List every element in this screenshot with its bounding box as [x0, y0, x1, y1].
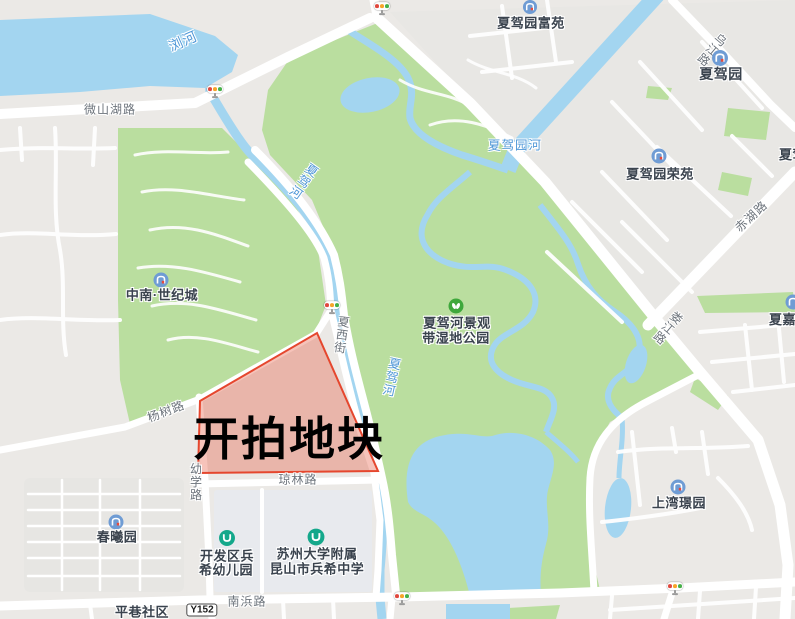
poi-label-kindergarten-line2[interactable]: 希幼儿园 [199, 560, 253, 579]
river-label-xiajiayuanhe: 夏驾园河 [488, 135, 542, 154]
traffic-light-icon [374, 2, 390, 15]
poi-label-school-line2[interactable]: 昆山市兵希中学 [270, 559, 365, 578]
poi-marker-xiajia[interactable] [785, 294, 795, 310]
traffic-light-icon [324, 301, 340, 314]
poi-label-xiajiayuan-rongyuan[interactable]: 夏驾园荣苑 [626, 164, 694, 183]
map-canvas[interactable]: 微山湖路 杨树路 幼学路 琼林路 夏西街 南浜路 乌江路 赤湖路 娄江路 Y15… [0, 0, 795, 619]
traffic-light-icon [667, 582, 683, 595]
pond-south [446, 604, 510, 619]
poi-marker-kindergarten[interactable] [219, 530, 236, 547]
road-badge-y152: Y152 [186, 604, 217, 617]
poi-label-wetland-park-line2[interactable]: 带湿地公园 [422, 328, 490, 347]
poi-label-xiajiayuan-fuyuan[interactable]: 夏驾园富苑 [497, 13, 565, 32]
poi-label-xiajia[interactable]: 夏嘉 [769, 309, 795, 328]
poi-label-zhongnan[interactable]: 中南·世纪城 [126, 285, 198, 304]
poi-marker-xiajiayuan-rongyuan[interactable] [651, 148, 667, 164]
traffic-light-icon [207, 85, 223, 98]
poi-label-xiajia-right[interactable]: 夏驾 [779, 144, 795, 163]
auction-parcel-annotation: 开拍地块 [193, 403, 385, 469]
road-label-qionglin: 琼林路 [278, 471, 317, 488]
road-label-weishanhu: 微山湖路 [84, 101, 136, 118]
traffic-light-icon [394, 592, 410, 605]
poi-label-shangwan[interactable]: 上湾璟园 [652, 493, 706, 512]
poi-label-xiajiayuan[interactable]: 夏驾园 [699, 64, 743, 84]
poi-label-pingxiang[interactable]: 平巷社区 [115, 602, 169, 619]
poi-label-chunxiyuan[interactable]: 春曦园 [97, 527, 138, 546]
road-label-nanbang: 南浜路 [227, 593, 266, 610]
